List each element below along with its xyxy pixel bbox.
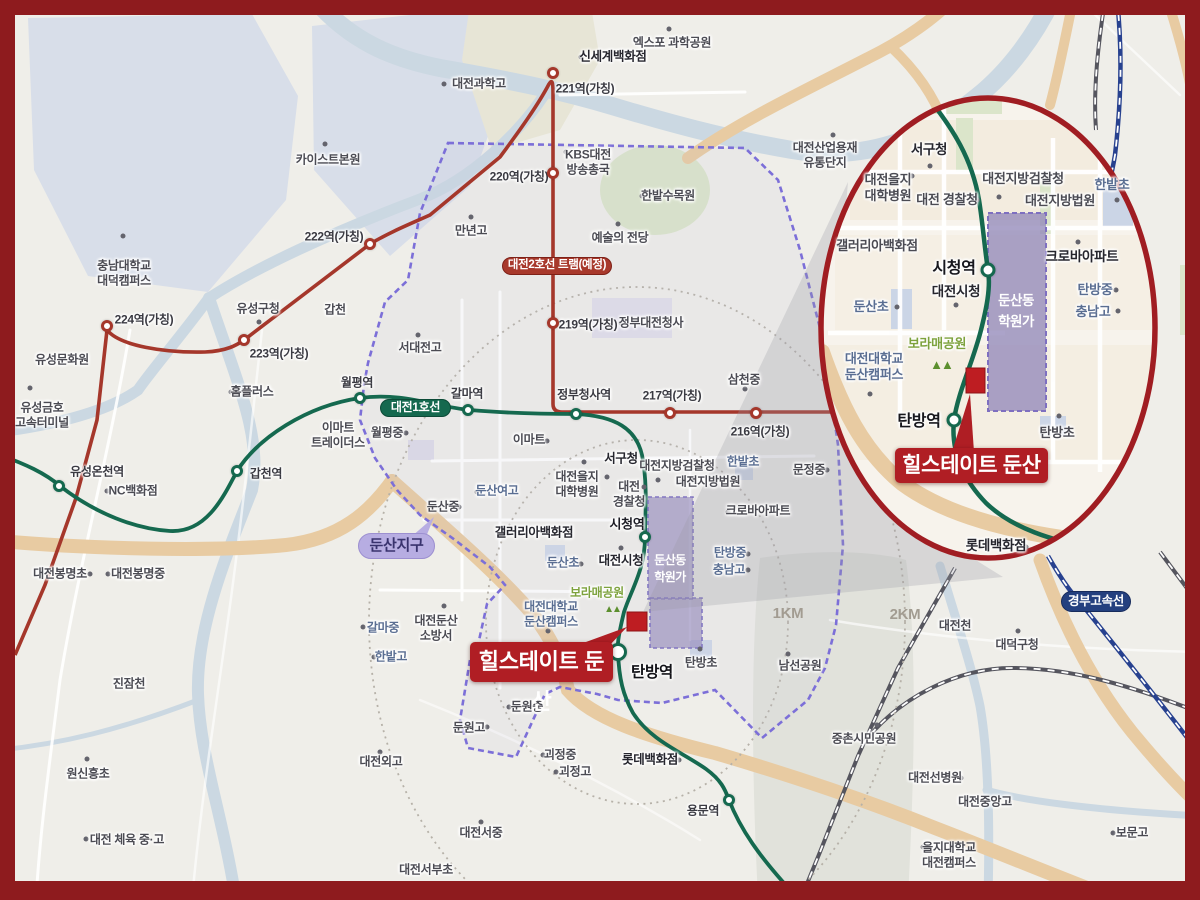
- poi-dot: [642, 485, 647, 490]
- inset-map: [821, 98, 1158, 558]
- poi-dot: [726, 510, 731, 515]
- poi-dot: [469, 215, 474, 220]
- poi-dot: [619, 546, 624, 551]
- station-marker: [750, 407, 762, 419]
- poi-dot: [84, 837, 89, 842]
- poi-dot: [457, 505, 462, 510]
- station-marker: [547, 167, 559, 179]
- poi-dot: [485, 725, 490, 730]
- poi-dot: [416, 333, 421, 338]
- station-marker: [547, 317, 559, 329]
- poi-dot: [619, 321, 624, 326]
- poi-dot: [1016, 629, 1021, 634]
- ktx-badge: 경부고속선: [1061, 591, 1131, 612]
- poi-dot: [579, 55, 584, 60]
- poi-dot: [786, 652, 791, 657]
- poi-dot: [442, 82, 447, 87]
- poi-dot: [868, 392, 873, 397]
- poi-dot: [746, 552, 751, 557]
- poi-dot: [497, 531, 502, 536]
- station-marker: [547, 67, 559, 79]
- station-marker: [354, 392, 366, 404]
- station-marker: [981, 263, 996, 278]
- poi-dot: [420, 882, 425, 887]
- poi-dot: [921, 845, 926, 850]
- poi-dot: [106, 572, 111, 577]
- poi-dot: [656, 478, 661, 483]
- station-marker: [947, 413, 962, 428]
- poi-dot: [1024, 545, 1029, 550]
- station-marker: [53, 480, 65, 492]
- poi-dot: [875, 723, 880, 728]
- poi-dot: [85, 757, 90, 762]
- poi-dot: [1116, 309, 1121, 314]
- poi-dot: [372, 655, 377, 660]
- poi-dot: [1057, 414, 1062, 419]
- poi-dot: [1027, 198, 1032, 203]
- site-marker-inset: [966, 368, 985, 393]
- poi-dot: [105, 489, 110, 494]
- station-marker: [664, 407, 676, 419]
- poi-dot: [1115, 198, 1120, 203]
- poi-dot: [954, 303, 959, 308]
- poi-dot: [677, 758, 682, 763]
- poi-dot: [959, 776, 964, 781]
- poi-dot: [975, 198, 980, 203]
- site-marker-main: [627, 612, 647, 631]
- poi-dot: [475, 490, 480, 495]
- tram-line2-badge: 대전2호선 트램(예정): [502, 257, 612, 275]
- poi-dot: [605, 475, 610, 480]
- poi-dot: [1114, 288, 1119, 293]
- poi-dot: [667, 27, 672, 32]
- poi-dot: [831, 133, 836, 138]
- station-marker: [101, 320, 113, 332]
- poi-dot: [545, 439, 550, 444]
- poi-dot: [564, 150, 569, 155]
- poi-dot: [1076, 240, 1081, 245]
- poi-dot: [825, 468, 830, 473]
- poi-dot: [378, 750, 383, 755]
- poi-dot: [616, 222, 621, 227]
- station-marker: [364, 238, 376, 250]
- poi-dot: [735, 476, 740, 481]
- location-map: 엑스포 과학공원신세계백화점대전과학고카이스트본원충남대학교 대덕캠퍼스KBS대…: [0, 0, 1200, 900]
- poi-dot: [579, 562, 584, 567]
- station-marker: [238, 334, 250, 346]
- poi-dot: [640, 194, 645, 199]
- poi-dot: [554, 770, 559, 775]
- poi-dot: [479, 820, 484, 825]
- poi-dot: [121, 234, 126, 239]
- poi-dot: [404, 431, 409, 436]
- poi-dot: [1111, 831, 1116, 836]
- poi-dot: [910, 174, 915, 179]
- poi-dot: [546, 629, 551, 634]
- poi-dot: [257, 320, 262, 325]
- site-badge-inset: 힐스테이트 둔산: [895, 448, 1048, 483]
- poi-dot: [229, 390, 234, 395]
- poi-dot: [698, 647, 703, 652]
- academy-district-inset: [988, 213, 1046, 411]
- poi-dot: [507, 705, 512, 710]
- poi-dot: [997, 195, 1002, 200]
- poi-dot: [28, 386, 33, 391]
- poi-dot: [746, 568, 751, 573]
- station-marker: [570, 408, 582, 420]
- station-marker: [639, 531, 651, 543]
- poi-dot: [442, 604, 447, 609]
- district-badge: 둔산지구: [358, 533, 435, 559]
- poi-dot: [582, 460, 587, 465]
- poi-dot: [1007, 800, 1012, 805]
- poi-dot: [743, 387, 748, 392]
- poi-dot: [678, 480, 683, 485]
- site-badge-main: 힐스테이트 둔산: [470, 642, 613, 682]
- line1-badge: 대전1호선: [380, 399, 451, 417]
- poi-dot: [837, 243, 842, 248]
- poi-dot: [88, 572, 93, 577]
- poi-dot: [541, 753, 546, 758]
- station-marker: [723, 794, 735, 806]
- poi-dot: [928, 164, 933, 169]
- poi-dot: [361, 625, 366, 630]
- poi-dot: [895, 305, 900, 310]
- poi-dot: [323, 142, 328, 147]
- station-marker: [231, 465, 243, 477]
- station-marker: [462, 404, 474, 416]
